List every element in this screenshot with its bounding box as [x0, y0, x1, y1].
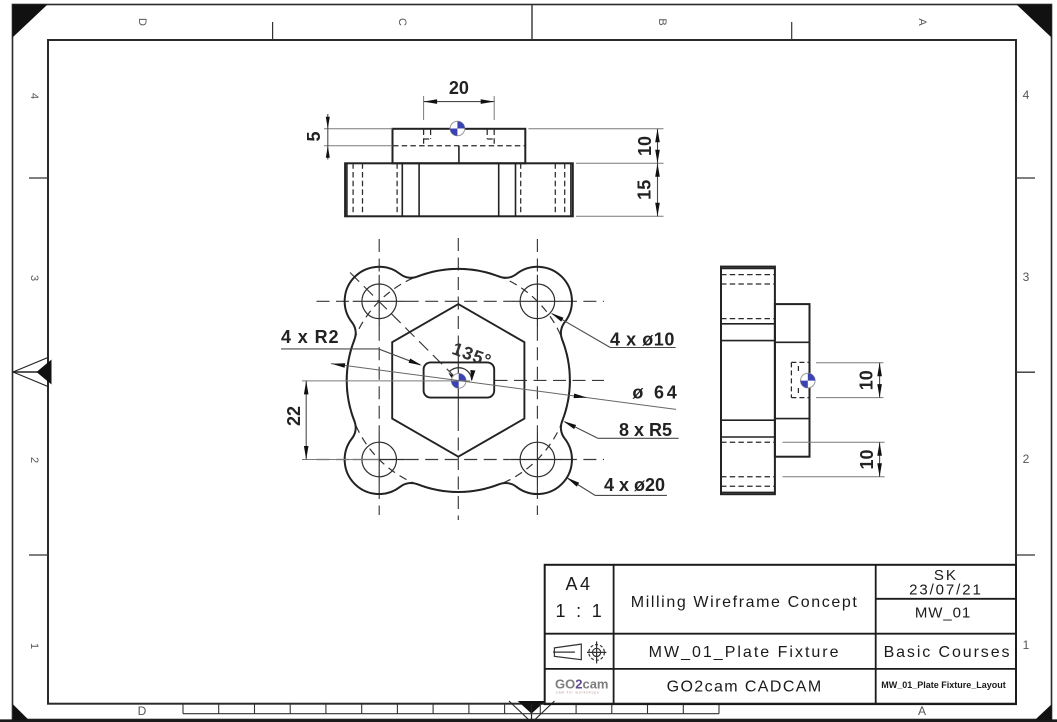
- svg-text:1 : 1: 1 : 1: [555, 601, 604, 621]
- svg-text:GO2cam: GO2cam: [555, 677, 609, 692]
- svg-text:C: C: [396, 18, 408, 26]
- svg-text:D: D: [136, 18, 148, 26]
- svg-text:ø 64: ø 64: [632, 382, 679, 402]
- svg-text:10: 10: [635, 136, 655, 156]
- svg-text:3: 3: [28, 275, 40, 281]
- svg-text:1: 1: [28, 643, 40, 649]
- svg-text:B: B: [656, 18, 668, 25]
- svg-text:5: 5: [304, 131, 324, 141]
- svg-text:4 x ø20: 4 x ø20: [604, 475, 665, 495]
- svg-text:MW_01_Plate Fixture_Layout: MW_01_Plate Fixture_Layout: [881, 680, 1006, 690]
- svg-text:10: 10: [857, 449, 877, 469]
- svg-text:23/07/21: 23/07/21: [909, 582, 983, 599]
- svg-text:Basic Courses: Basic Courses: [884, 644, 1012, 661]
- svg-text:4: 4: [28, 93, 40, 99]
- svg-text:2: 2: [28, 457, 40, 463]
- svg-text:15: 15: [635, 180, 655, 200]
- svg-text:4 x ø10: 4 x ø10: [610, 330, 675, 350]
- svg-text:4: 4: [1023, 88, 1030, 102]
- svg-text:10: 10: [857, 370, 877, 390]
- svg-text:A: A: [916, 18, 928, 26]
- svg-text:22: 22: [284, 406, 304, 426]
- svg-text:4 x R2: 4 x R2: [281, 327, 339, 347]
- svg-text:D: D: [138, 704, 147, 718]
- svg-text:1: 1: [1023, 638, 1030, 652]
- svg-text:MW_01: MW_01: [915, 605, 971, 622]
- svg-text:cam for workshops: cam for workshops: [556, 691, 600, 695]
- svg-text:Milling Wireframe Concept: Milling Wireframe Concept: [631, 594, 859, 611]
- svg-text:MW_01_Plate Fixture: MW_01_Plate Fixture: [649, 644, 841, 661]
- svg-text:3: 3: [1023, 270, 1030, 284]
- svg-text:20: 20: [449, 78, 469, 98]
- svg-text:A: A: [918, 704, 926, 718]
- svg-text:GO2cam CADCAM: GO2cam CADCAM: [667, 679, 823, 696]
- svg-text:A4: A4: [565, 574, 592, 594]
- svg-text:2: 2: [1023, 452, 1030, 466]
- svg-text:8 x R5: 8 x R5: [619, 420, 672, 440]
